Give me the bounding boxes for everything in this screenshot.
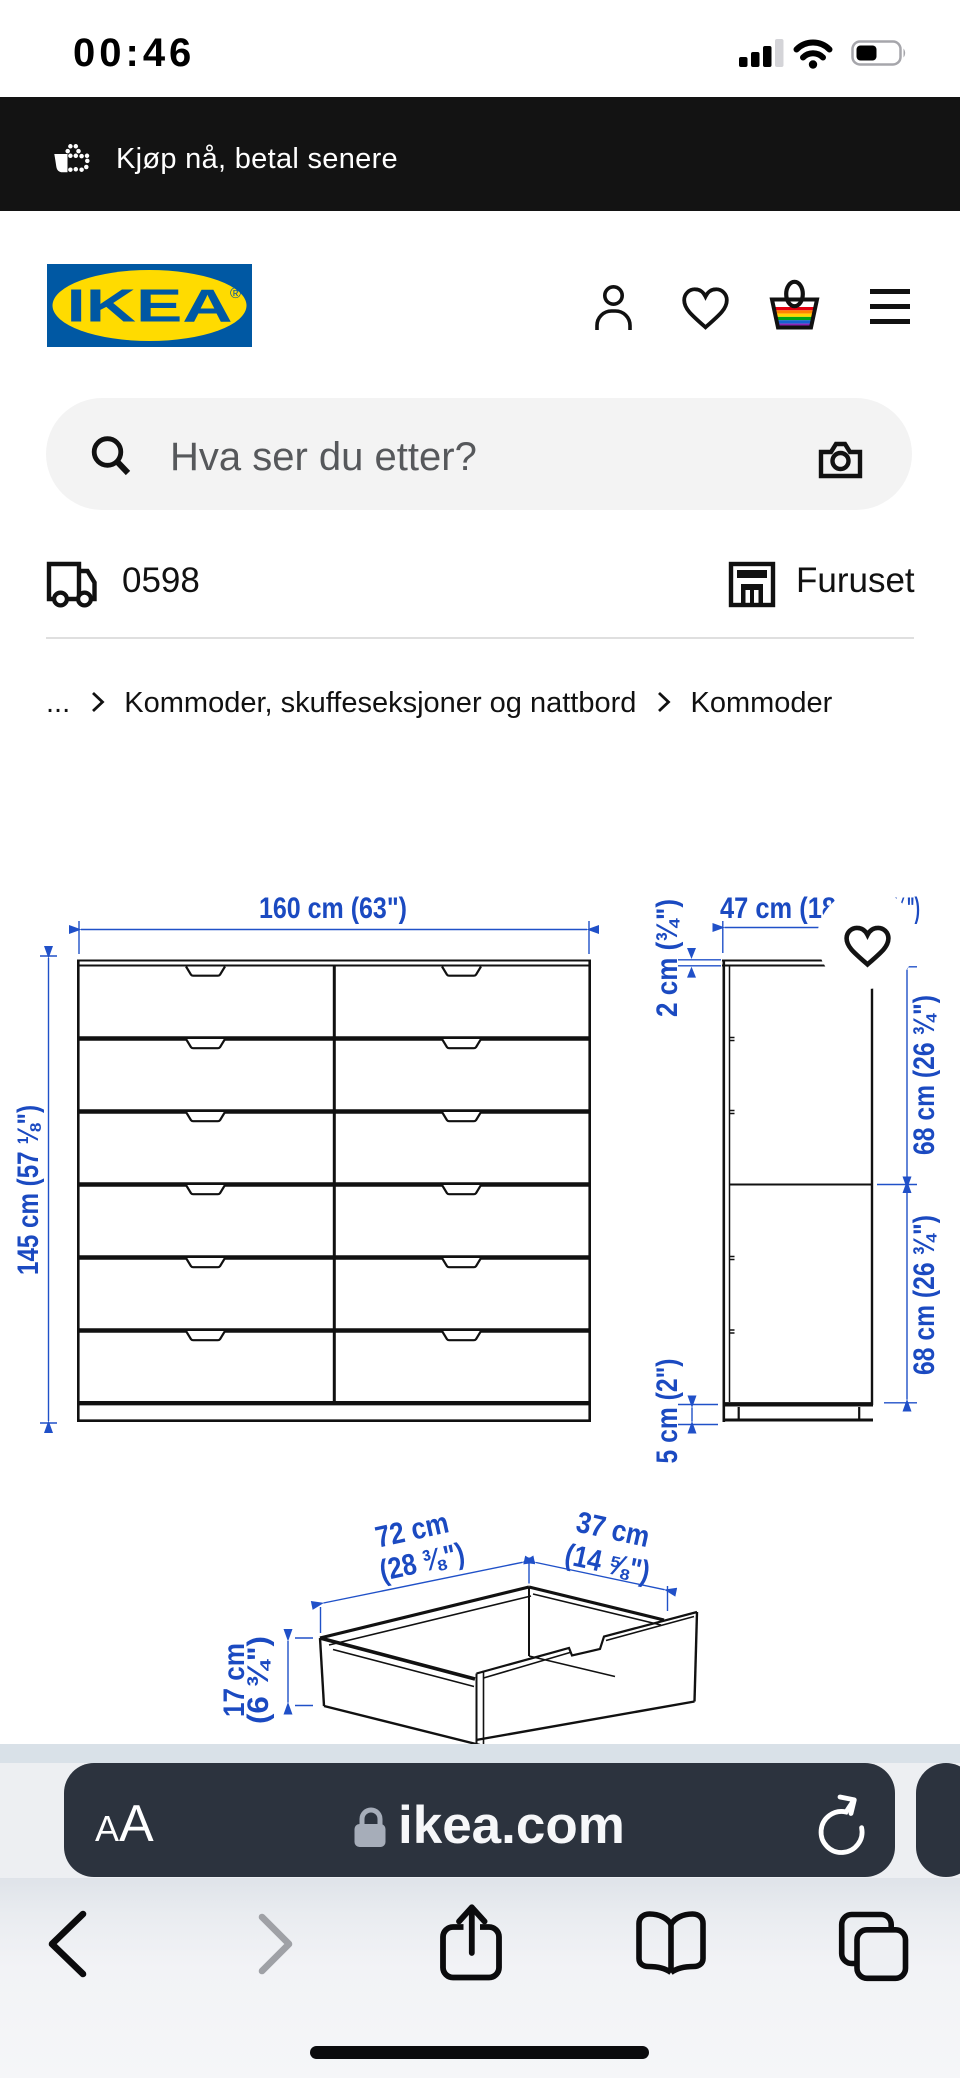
svg-text:(6 ¾"): (6 ¾") (242, 1636, 275, 1724)
svg-text:160 cm (63"): 160 cm (63") (259, 892, 407, 925)
svg-text:5 cm (2"): 5 cm (2") (651, 1359, 684, 1464)
svg-text:145 cm (57 ⅛"): 145 cm (57 ⅛") (12, 1105, 45, 1275)
svg-text:68 cm (26 ¾"): 68 cm (26 ¾") (908, 1215, 941, 1375)
svg-text:2 cm (¾"): 2 cm (¾") (651, 899, 684, 1017)
svg-text:68 cm (26 ¾"): 68 cm (26 ¾") (908, 995, 941, 1155)
svg-text:IKEA: IKEA (67, 280, 233, 332)
svg-text:47 cm (18: 47 cm (18 (720, 892, 836, 925)
svg-text:®: ® (230, 285, 241, 302)
